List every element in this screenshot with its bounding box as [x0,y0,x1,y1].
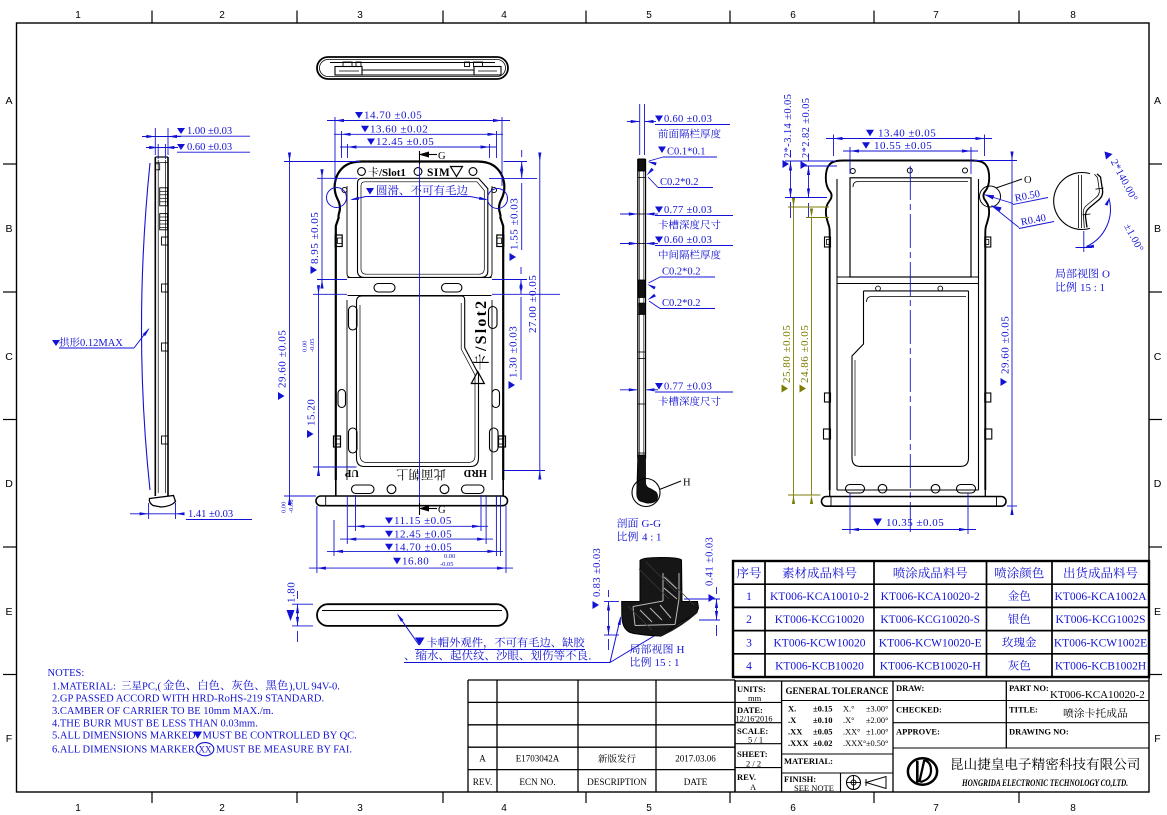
svg-text:16.80: 16.80 [402,555,429,567]
svg-text:10.55 ±0.05: 10.55 ±0.05 [874,140,932,152]
svg-text:HRD: HRD [463,467,487,478]
svg-text:ECN NO.: ECN NO. [519,777,555,787]
svg-text:A: A [750,782,757,792]
svg-text:12.45 ±0.05: 12.45 ±0.05 [376,136,434,148]
svg-text:2 / 2: 2 / 2 [746,759,761,769]
svg-text:HONGRIDA ELECTRONIC TECHNOLOGY: HONGRIDA ELECTRONIC TECHNOLOGY CO,LTD. [961,778,1128,789]
svg-text:8.95 ±0.05: 8.95 ±0.05 [309,212,321,264]
svg-text:8: 8 [1070,803,1076,814]
svg-text:7: 7 [933,803,939,814]
svg-text:5: 5 [646,803,652,814]
svg-text:1: 1 [75,803,81,814]
svg-text:6: 6 [790,803,796,814]
svg-text:±3.00°: ±3.00° [866,705,888,714]
svg-text:.XXX: .XXX [788,738,809,748]
svg-text:KT006-KCW10020-E: KT006-KCW10020-E [879,637,982,649]
svg-text:27.00 ±0.05: 27.00 ±0.05 [527,275,539,333]
svg-text:mm: mm [748,693,762,703]
svg-text:±0.05: ±0.05 [813,727,833,737]
svg-text:XX: XX [199,745,212,755]
svg-text:KT006-KCA10010-2: KT006-KCA10010-2 [770,591,869,603]
svg-text:2017.03.06: 2017.03.06 [675,754,716,764]
svg-text:APPROVE:: APPROVE: [896,727,940,737]
svg-text:29.60 ±0.05: 29.60 ±0.05 [1000,316,1012,374]
svg-text:4: 4 [501,10,507,21]
svg-text:.XXX°: .XXX° [843,739,866,748]
svg-text:X.: X. [788,704,796,714]
svg-text:MUST BE MEASURE BY FAI.: MUST BE MEASURE BY FAI. [216,744,352,755]
svg-text:±2.00°: ±2.00° [866,716,888,725]
svg-text:4: 4 [501,803,507,814]
svg-text:6.ALL DIMENSIONS MARKER: 6.ALL DIMENSIONS MARKER [52,744,195,755]
svg-text:11.15 ±0.05: 11.15 ±0.05 [394,515,452,527]
svg-text:MUST BE CONTROLLED BY QC.: MUST BE CONTROLLED BY QC. [203,731,357,742]
svg-text:1.30 ±0.03: 1.30 ±0.03 [508,326,520,378]
svg-text:24.86 ±0.05: 24.86 ±0.05 [799,325,811,383]
svg-text:KT006-KCA10020-2: KT006-KCA10020-2 [881,591,980,603]
svg-text:0.00: 0.00 [281,502,288,513]
svg-text:±0.50°: ±0.50° [866,739,888,748]
svg-text:REV.: REV. [737,772,756,782]
svg-text:CHECKED:: CHECKED: [896,705,942,715]
svg-text:D: D [5,478,13,490]
svg-text:0.00: 0.00 [302,341,309,352]
svg-text:1.MATERIAL:: 1.MATERIAL: [52,681,116,692]
svg-text:A: A [1154,95,1161,107]
svg-text:12/16'2016: 12/16'2016 [736,715,773,724]
svg-text:1.80: 1.80 [286,582,298,603]
svg-text:.XX: .XX [788,727,803,737]
svg-text:29.60 ±0.05: 29.60 ±0.05 [277,330,289,388]
svg-text:0.60 ±0.03: 0.60 ±0.03 [187,142,232,153]
svg-text:C0.2*0.2: C0.2*0.2 [660,177,699,188]
svg-text:1.00 ±0.03: 1.00 ±0.03 [187,126,232,137]
svg-text:KT006-KCG10020: KT006-KCG10020 [775,614,865,626]
svg-text:MATERIAL:: MATERIAL: [784,756,833,766]
svg-text:UP: UP [344,467,359,478]
svg-text:4.THE BURR MUST BE LESS THAN 0: 4.THE BURR MUST BE LESS THAN 0.03mm. [52,718,258,729]
svg-text:13.40 ±0.05: 13.40 ±0.05 [878,127,936,139]
svg-text:KT006-KCG10020-S: KT006-KCG10020-S [880,614,980,626]
svg-text:C: C [1154,351,1162,363]
svg-text:6: 6 [790,10,796,21]
svg-text:2*2.82 ±0.05: 2*2.82 ±0.05 [801,98,812,158]
svg-text:DATE: DATE [684,777,708,787]
svg-text:O: O [1024,175,1032,186]
svg-text:3: 3 [357,803,363,814]
svg-text:1.55 ±0.03: 1.55 ±0.03 [509,198,521,250]
svg-text:0.60 ±0.03: 0.60 ±0.03 [664,114,712,125]
svg-text:KT006-KCB10020-H: KT006-KCB10020-H [880,661,981,673]
svg-text:GENERAL TOLERANCE: GENERAL TOLERANCE [786,686,889,696]
svg-text:DRAW:: DRAW: [896,683,925,693]
svg-text:G-G: G-G [642,518,662,530]
svg-text:1: 1 [75,10,81,21]
svg-text:-0.06: -0.06 [288,499,295,513]
svg-text:0.41 ±0.03: 0.41 ±0.03 [705,537,716,586]
svg-text:0.83 ±0.03: 0.83 ±0.03 [592,548,603,597]
svg-text:KT006-KCG1002S: KT006-KCG1002S [1055,614,1145,626]
svg-text:SIM: SIM [427,167,450,179]
svg-text:E1703042A: E1703042A [516,754,560,764]
svg-text:/Slot1: /Slot1 [378,167,406,179]
svg-text:PC,(: PC,( [142,681,161,692]
svg-text:KT006-KCA10020-2: KT006-KCA10020-2 [1050,689,1145,701]
svg-text:DESCRIPTION: DESCRIPTION [587,777,647,787]
svg-text:5.ALL DIMENSIONS MARKED: 5.ALL DIMENSIONS MARKED [52,731,196,742]
svg-text:DATE:: DATE: [737,705,763,715]
svg-text:1: 1 [746,591,752,603]
svg-text:REV.: REV. [473,777,493,787]
svg-text:KT006-KCA1002A: KT006-KCA1002A [1055,591,1148,603]
svg-text:KT006-KCW10020: KT006-KCW10020 [774,637,866,649]
svg-text:A: A [5,95,12,107]
svg-text:PART NO:: PART NO: [1009,683,1049,693]
svg-text:0.77 ±0.03: 0.77 ±0.03 [664,205,712,216]
svg-text:14.70 ±0.05: 14.70 ±0.05 [364,110,422,122]
svg-text:),UL 94V-0.: ),UL 94V-0. [289,681,340,692]
svg-text:0.77 ±0.03: 0.77 ±0.03 [664,382,712,393]
svg-text:3: 3 [746,637,752,649]
svg-text:15.20: 15.20 [306,399,318,426]
svg-text:4: 4 [746,661,752,673]
svg-text:C0.2*0.2: C0.2*0.2 [662,298,701,309]
svg-text:2: 2 [219,803,225,814]
svg-text:2*-3.14 ±0.05: 2*-3.14 ±0.05 [783,94,794,158]
svg-text:.X°: .X° [843,716,854,725]
svg-text:.XX°: .XX° [843,728,860,737]
svg-text:X.°: X.° [843,705,854,714]
svg-text:H: H [677,644,685,656]
svg-text:7: 7 [933,10,939,21]
svg-text:B: B [5,223,12,235]
svg-text:SEE NOTE: SEE NOTE [794,783,834,793]
svg-text:0.00: 0.00 [444,553,455,560]
svg-text:NOTES:: NOTES: [48,668,85,679]
svg-text:5: 5 [646,10,652,21]
svg-text:/Slot2: /Slot2 [473,299,490,352]
svg-text:F: F [6,733,12,745]
svg-text:±0.15: ±0.15 [813,704,833,714]
svg-text:G: G [438,151,446,162]
svg-text:±1.00°: ±1.00° [866,728,888,737]
svg-text:E: E [5,606,12,618]
svg-text:-0.05: -0.05 [309,338,316,352]
svg-text:KT006-KCB10020: KT006-KCB10020 [775,661,864,673]
svg-text:B: B [1154,223,1161,235]
svg-text:DRAWING NO:: DRAWING NO: [1009,727,1069,737]
svg-text:15 : 1: 15 : 1 [655,657,680,669]
svg-text:13.60 ±0.02: 13.60 ±0.02 [370,123,428,135]
svg-text:KT006-KCW1002E: KT006-KCW1002E [1054,637,1147,649]
svg-text:A: A [479,754,486,764]
svg-text:TITLE:: TITLE: [1009,705,1038,715]
svg-text:.X: .X [788,715,797,725]
svg-text:1.41 ±0.03: 1.41 ±0.03 [188,509,233,520]
svg-text:0.60 ±0.03: 0.60 ±0.03 [664,235,712,246]
svg-text:±0.10: ±0.10 [813,715,833,725]
svg-text:D: D [1154,478,1162,490]
svg-text:H: H [683,478,691,489]
svg-text:2: 2 [219,10,225,21]
svg-text:2.GP PASSED ACCORD WITH HRD-Ro: 2.GP PASSED ACCORD WITH HRD-RoHS-219 STA… [52,694,324,705]
svg-text:8: 8 [1070,10,1076,21]
svg-text:25.80 ±0.05: 25.80 ±0.05 [781,325,793,383]
svg-text:15 : 1: 15 : 1 [1080,282,1105,294]
svg-text:C0.1*0.1: C0.1*0.1 [667,147,706,158]
svg-text:F: F [1154,733,1160,745]
svg-text:KT006-KCB1002H: KT006-KCB1002H [1055,661,1146,673]
svg-text:3.CAMBER OF CARRIER TO BE 10mm: 3.CAMBER OF CARRIER TO BE 10mm MAX./m. [52,706,274,717]
svg-text:±0.02: ±0.02 [813,738,833,748]
svg-text:C: C [5,351,13,363]
svg-text:O: O [1102,269,1110,281]
svg-text:SHEET:: SHEET: [737,749,768,759]
svg-text:5 / 1: 5 / 1 [748,735,763,745]
svg-text:3: 3 [357,10,363,21]
svg-text:12.45 ±0.05: 12.45 ±0.05 [394,528,452,540]
svg-text:4 : 1: 4 : 1 [642,532,662,544]
svg-text:2: 2 [746,614,752,626]
svg-text:10.35 ±0.05: 10.35 ±0.05 [886,517,944,529]
svg-text:E: E [1154,606,1161,618]
svg-text:0.12MAX: 0.12MAX [80,338,123,349]
svg-text:C0.2*0.2: C0.2*0.2 [662,267,701,278]
svg-text:-0.05: -0.05 [440,561,454,568]
svg-text:14.70 ±0.05: 14.70 ±0.05 [394,541,452,553]
